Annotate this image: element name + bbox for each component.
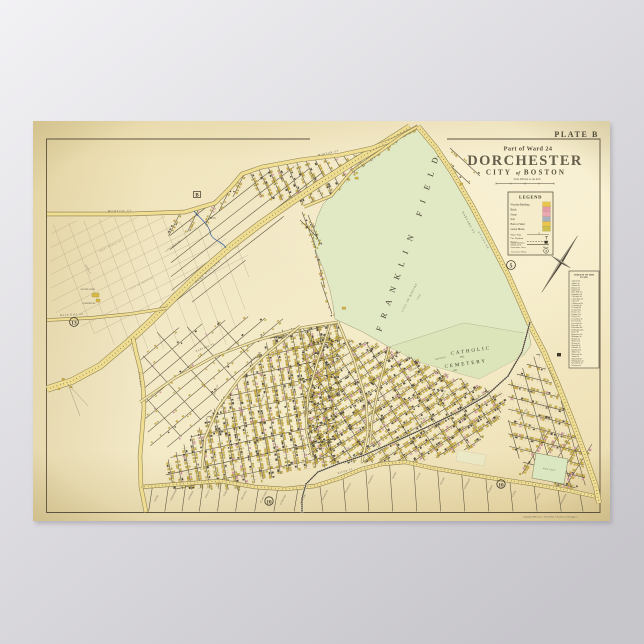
svg-text:CITY of BOSTON: CITY of BOSTON [486, 169, 566, 177]
svg-text:Iron: Iron [511, 218, 516, 221]
svg-text:13: 13 [71, 320, 77, 326]
svg-text:STREETS ON THIS: STREETS ON THIS [574, 275, 595, 277]
svg-text:10: 10 [266, 499, 272, 505]
svg-text:PLATE B: PLATE B [554, 130, 599, 139]
svg-text:Woolson St: Woolson St [572, 365, 582, 367]
svg-text:Assessors Plans: Assessors Plans [511, 250, 527, 253]
svg-text:10: 10 [498, 482, 504, 488]
svg-text:LEGEND: LEGEND [519, 195, 542, 200]
svg-text:5: 5 [510, 263, 513, 269]
svg-text:Copyright 1898 by Geo. W. & Wa: Copyright 1898 by Geo. W. & Walter S. Br… [523, 516, 578, 519]
svg-text:PLATE: PLATE [580, 276, 588, 279]
svg-text:10: 10 [538, 233, 540, 235]
svg-text:Part of Ward 24: Part of Ward 24 [504, 146, 553, 153]
svg-text:Stone: Stone [511, 213, 518, 216]
svg-text:Scale 200 feet to one inch: Scale 200 feet to one inch [514, 178, 542, 181]
svg-text:ALMSHOUSE: ALMSHOUSE [82, 302, 96, 305]
svg-text:Ward Number: Ward Number [511, 242, 525, 245]
svg-text:DORCHESTER: DORCHESTER [467, 153, 583, 169]
svg-text:AUSTIN FARM: AUSTIN FARM [80, 288, 95, 291]
svg-text:Green House: Green House [511, 228, 526, 231]
svg-text:154: 154 [211, 216, 216, 220]
svg-text:Barn or Shed: Barn or Shed [511, 223, 526, 226]
svg-text:MORTON ST: MORTON ST [108, 210, 132, 213]
svg-text:Wooden Building: Wooden Building [511, 204, 531, 207]
svg-text:Brick: Brick [511, 208, 518, 211]
svg-text:3: 3 [545, 249, 547, 253]
svg-text:Assessors Area: Assessors Area [511, 246, 527, 249]
